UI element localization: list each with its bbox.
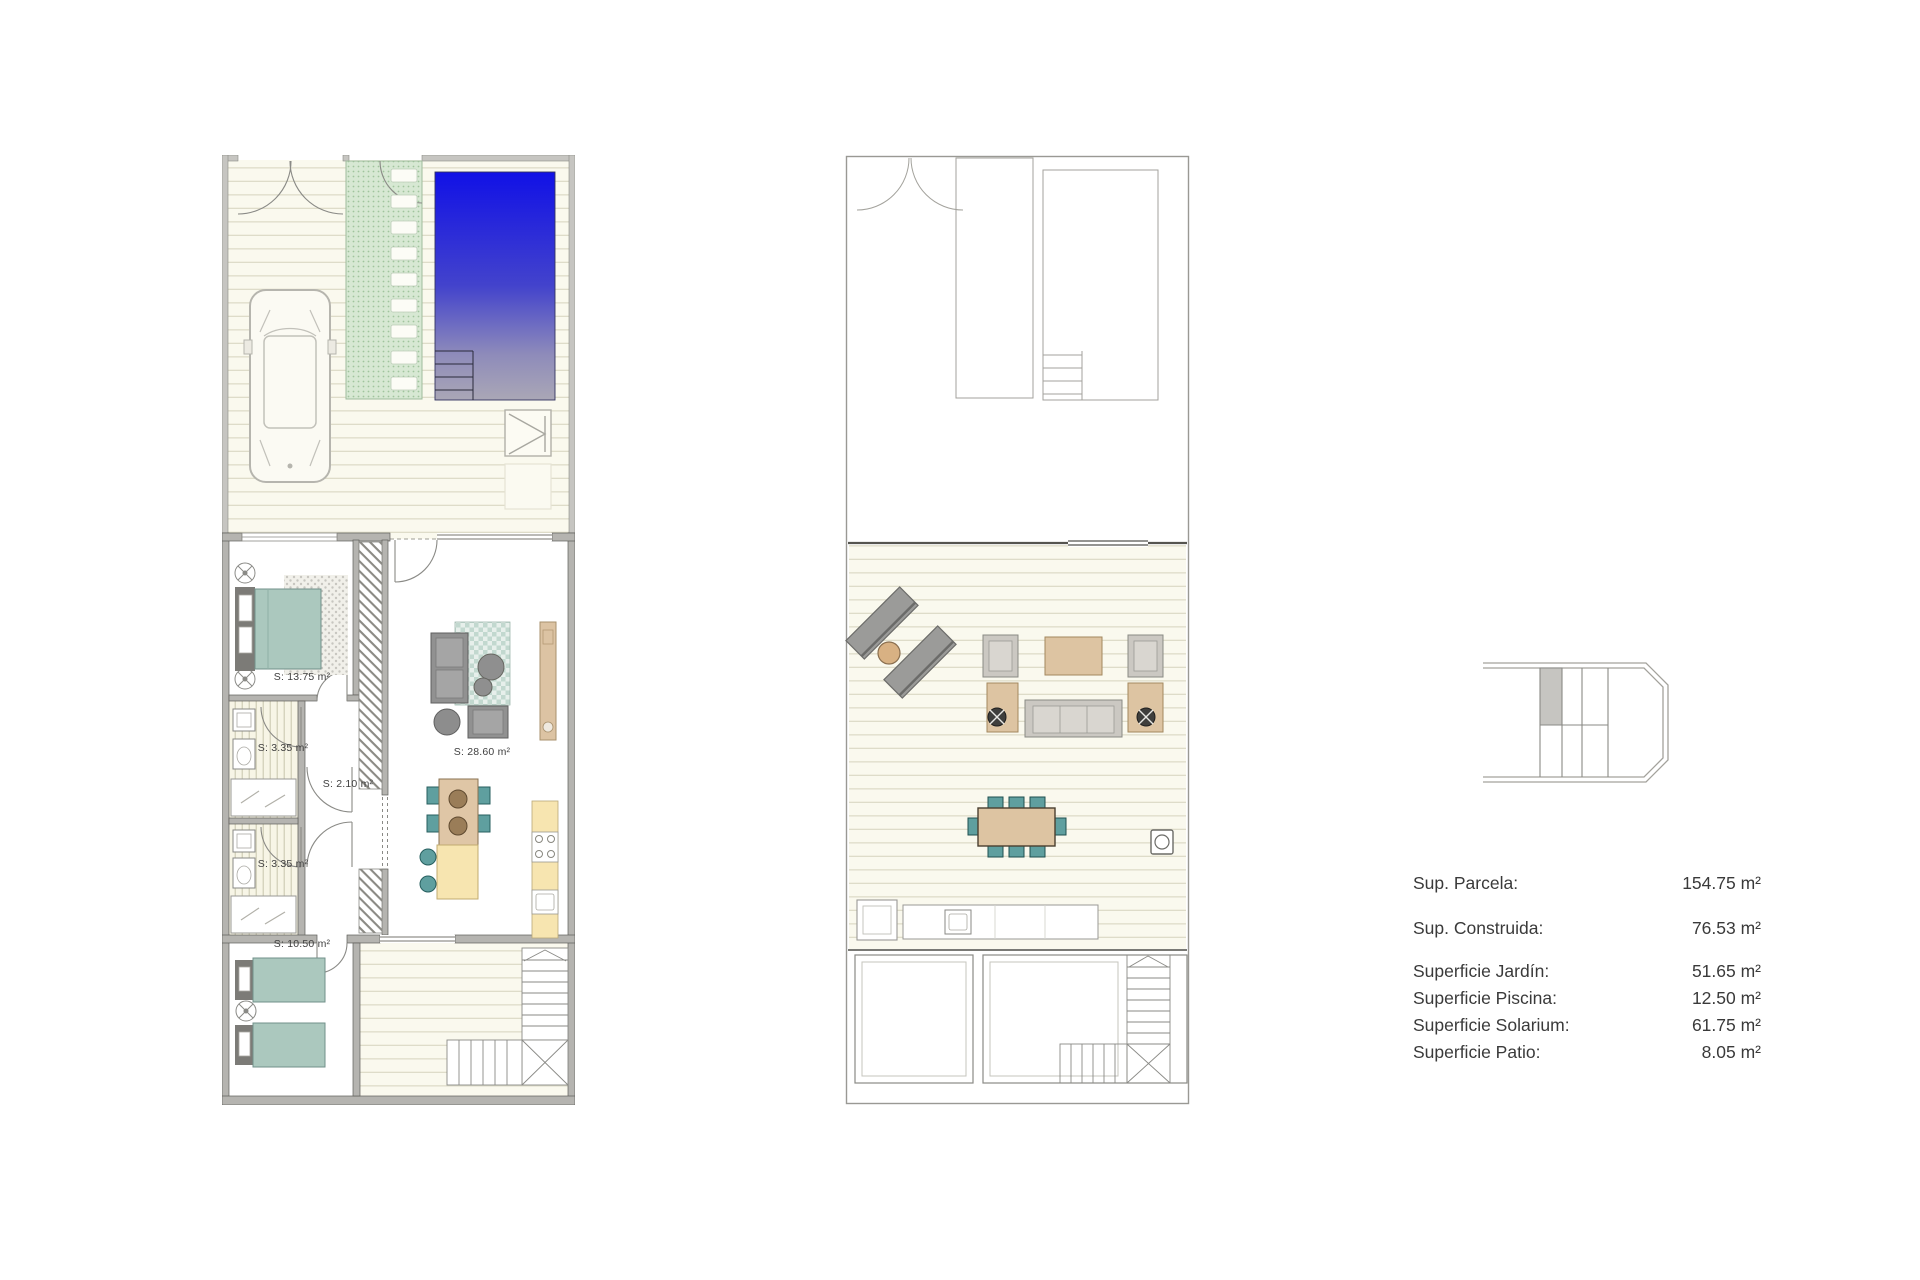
area-value: 61.75 m² (1692, 1014, 1761, 1036)
outdoor-sofa (1025, 700, 1122, 737)
area-summary: Sup. Parcela: 154.75 m² Sup. Construida:… (1413, 872, 1761, 1063)
garden-path (346, 161, 422, 399)
solarium-access-door (1068, 539, 1148, 547)
area-value: 8.05 m² (1702, 1041, 1761, 1063)
area-value: 154.75 m² (1682, 872, 1761, 894)
master-bed (235, 575, 348, 675)
area-row: Sup. Construida: 76.53 m² (1413, 917, 1761, 939)
tv-unit (540, 622, 556, 740)
area-row: Superficie Jardín: 51.65 m² (1413, 960, 1761, 982)
wall-light-icon (1151, 830, 1173, 854)
area-label: Superficie Patio: (1413, 1041, 1540, 1063)
area-value: 12.50 m² (1692, 987, 1761, 1009)
window-master-bedroom (242, 533, 337, 541)
summer-kitchen-counter (857, 900, 1098, 940)
area-row: Sup. Parcela: 154.75 m² (1413, 872, 1761, 894)
area-value: 51.65 m² (1692, 960, 1761, 982)
garden-area (222, 155, 575, 540)
closet-upper (359, 542, 382, 789)
house-interior (222, 533, 575, 1105)
parasol-base-icon (1137, 708, 1155, 726)
swimming-pool (435, 172, 555, 400)
solarium-floor-plan (845, 155, 1190, 1105)
car (244, 290, 336, 482)
area-row: Superficie Piscina: 12.50 m² (1413, 987, 1761, 1009)
sliding-door-patio (380, 935, 455, 943)
area-label: Superficie Jardín: (1413, 960, 1549, 982)
area-label: Sup. Parcela: (1413, 872, 1518, 894)
closet-lower (359, 869, 382, 933)
area-label: Sup. Construida: (1413, 917, 1543, 939)
patio-voids (848, 950, 1187, 1083)
area-label: Superficie Piscina: (1413, 987, 1557, 1009)
stair-landing (1540, 668, 1562, 725)
lounger-side-table (878, 642, 900, 664)
ground-floor-plan (222, 155, 575, 1105)
side-table-round-small (474, 678, 492, 696)
stair-section-detail (1483, 655, 1678, 790)
coffee-table (1045, 637, 1102, 675)
kitchen-counter (532, 801, 558, 938)
area-value: 76.53 m² (1692, 917, 1761, 939)
area-row: Superficie Patio: 8.05 m² (1413, 1041, 1761, 1063)
side-table-round (478, 654, 504, 680)
area-row: Superficie Solarium: 61.75 m² (1413, 1014, 1761, 1036)
area-label: Superficie Solarium: (1413, 1014, 1570, 1036)
parasol-base-icon (988, 708, 1006, 726)
floor-plan-sheet: S: 13.75 m² S: 3.35 m² S: 3.35 m² S: 2.1… (0, 0, 1920, 1280)
sliding-door-garden (437, 533, 552, 541)
